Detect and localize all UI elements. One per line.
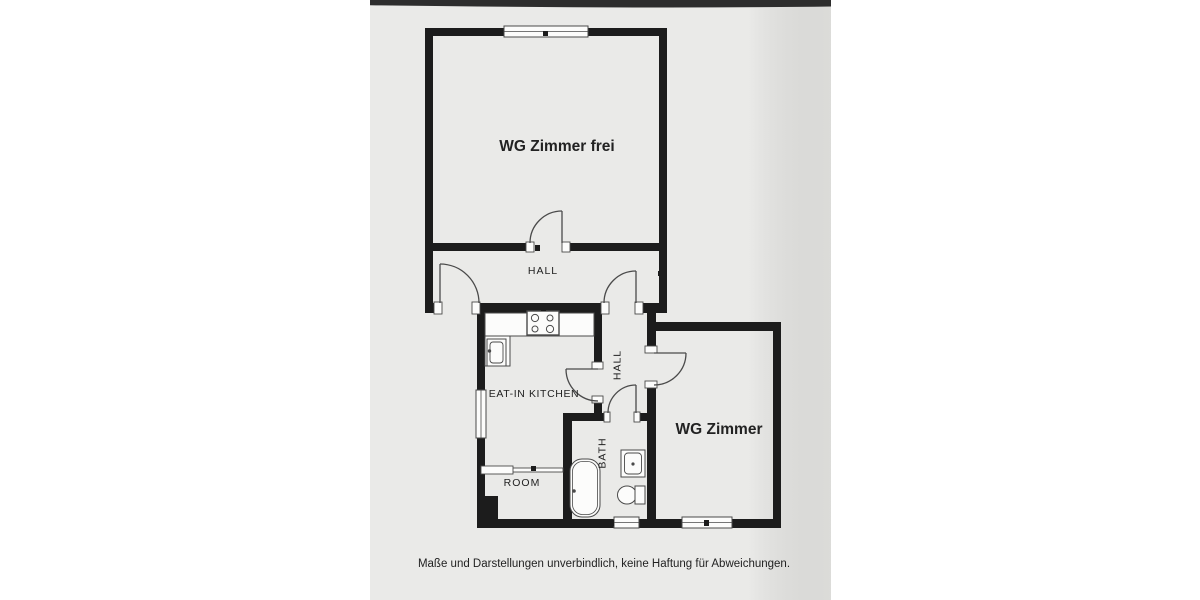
disclaimer-text: Maße und Darstellungen unverbindlich, ke… [418, 558, 790, 570]
door-jamb [635, 302, 643, 314]
wall-segment [425, 28, 433, 313]
toilet-bowl [618, 486, 637, 504]
door-jamb [434, 302, 442, 314]
dimension-tick [478, 355, 484, 360]
wall-segment [647, 382, 656, 528]
paper-shading [370, 0, 831, 600]
wall-segment [659, 28, 667, 313]
dimension-tick [648, 443, 655, 448]
door-jamb [601, 302, 609, 314]
dimension-tick [543, 31, 548, 36]
dimension-tick [426, 110, 433, 116]
dimension-tick [562, 307, 567, 312]
room-label-wg-zimmer-frei: WG Zimmer frei [499, 138, 614, 155]
dimension-tick [773, 420, 780, 425]
room-label-hall-main: HALL [528, 265, 558, 277]
door-jamb [562, 242, 570, 252]
dimension-tick [535, 245, 540, 251]
dimension-tick [426, 271, 433, 276]
door-jamb [645, 346, 657, 353]
wall-segment [477, 313, 485, 390]
toilet-tank [635, 486, 645, 504]
wall-segment [490, 519, 614, 528]
room-label-hall-side: HALL [612, 350, 624, 380]
dimension-tick [531, 520, 536, 526]
floorplan-scan-page: WG Zimmer frei HALL EAT-IN KITCHEN HALL … [0, 0, 1200, 600]
wall-segment [647, 519, 682, 528]
bath-sink-tap [631, 462, 634, 465]
bathtub [570, 459, 600, 517]
dimension-tick [658, 271, 665, 276]
door-jamb [472, 302, 480, 314]
room-label-room-small: ROOM [504, 477, 541, 489]
wall-segment [732, 519, 781, 528]
bathtub-tap [572, 489, 576, 493]
wall-segment [566, 243, 667, 251]
wall-segment [594, 313, 602, 368]
dimension-tick [564, 443, 571, 448]
door-jamb [634, 412, 640, 422]
room-label-kitchen: EAT-IN KITCHEN [489, 388, 579, 400]
dimension-tick [713, 324, 719, 329]
wall-segment [588, 28, 667, 36]
room-label-wg-zimmer: WG Zimmer [676, 421, 763, 438]
dimension-tick [648, 420, 655, 425]
wall-segment [425, 28, 504, 36]
dimension-tick [704, 520, 709, 526]
dimension-tick [541, 305, 546, 311]
dimension-tick [531, 466, 536, 471]
room-partition-panel [481, 466, 513, 474]
door-jamb [592, 396, 603, 403]
stove [527, 311, 559, 335]
door-jamb [604, 412, 610, 422]
door-jamb [526, 242, 534, 252]
door-jamb [592, 362, 603, 369]
wall-segment [425, 243, 530, 251]
room-label-bath: BATH [597, 437, 609, 468]
dimension-tick [659, 110, 666, 116]
dimension-tick [609, 520, 614, 526]
kitchen-sink-tap [488, 349, 491, 352]
